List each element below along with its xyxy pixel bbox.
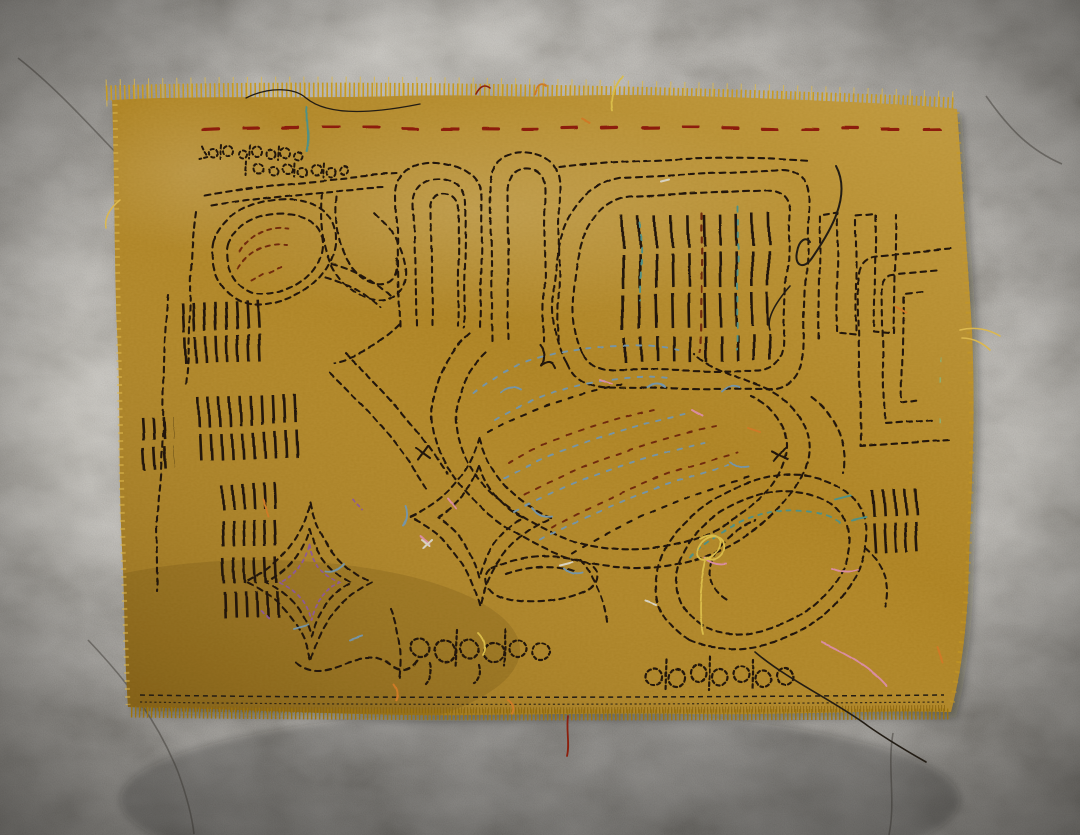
hanging-thread: [307, 108, 309, 150]
mola-textile-photo: Reverse of a hand-stitched mustard mola …: [0, 0, 1080, 835]
photo-stage: Reverse of a hand-stitched mustard mola …: [0, 0, 1080, 835]
hem-overlock-ticks: [140, 708, 945, 710]
hanging-thread-red: [567, 716, 568, 756]
